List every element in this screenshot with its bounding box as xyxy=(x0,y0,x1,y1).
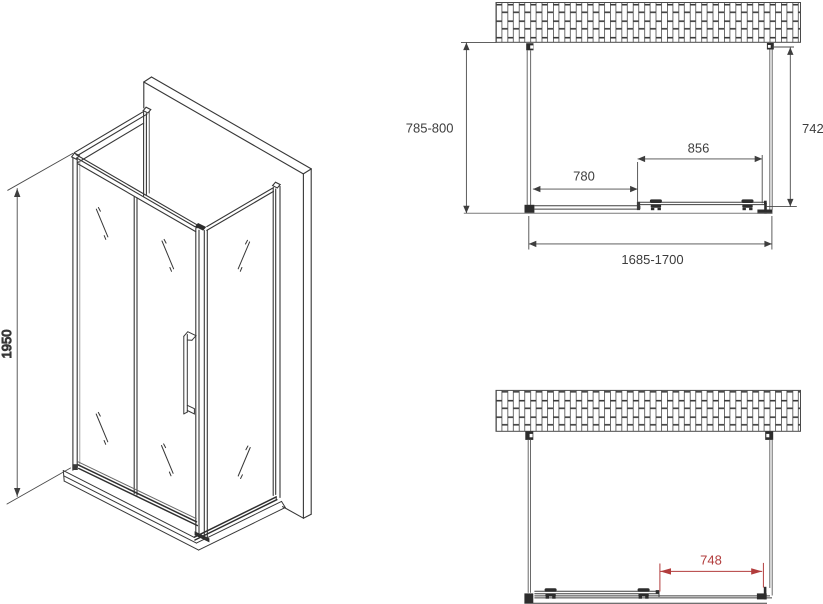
svg-text:1950: 1950 xyxy=(0,330,14,359)
svg-text:780: 780 xyxy=(573,168,595,183)
svg-text:785-800: 785-800 xyxy=(406,120,454,135)
svg-text:748: 748 xyxy=(700,553,722,568)
svg-text:1685-1700: 1685-1700 xyxy=(621,252,683,267)
svg-text:742: 742 xyxy=(802,121,823,136)
svg-text:856: 856 xyxy=(688,141,710,156)
